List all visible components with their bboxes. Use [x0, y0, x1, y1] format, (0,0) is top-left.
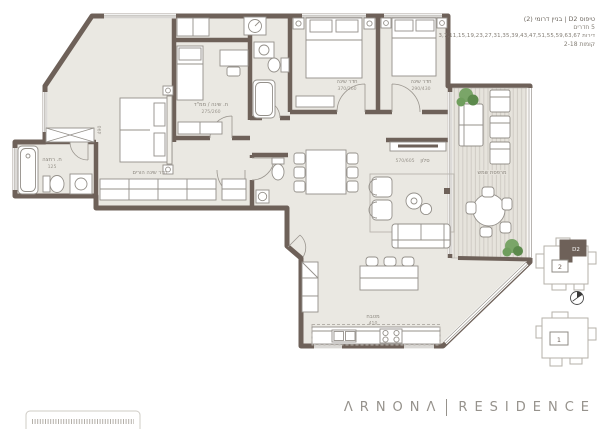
- label-balcony: מרפסת שמש: [478, 170, 507, 176]
- dining-table: [306, 150, 346, 194]
- dim-bedroom-study: 275/260: [201, 109, 220, 115]
- study-dresser: [178, 122, 222, 134]
- master-bed: [120, 96, 172, 164]
- master-sink: [70, 174, 92, 194]
- bathtub: [253, 80, 275, 118]
- bedroom-a-bed: [306, 18, 362, 78]
- logo-brand: ΛRNONΛ: [344, 400, 443, 415]
- window-bath-left: [13, 148, 18, 190]
- logo-divider: [446, 399, 447, 416]
- keyplan-building-1-label: 1: [557, 336, 561, 344]
- keyplan-unit-tag: D2: [572, 247, 580, 253]
- unit-type-line: טיפוס D2 | בניין דרומי (2): [355, 15, 595, 24]
- dim-bedroom-b: 290/430: [411, 86, 430, 92]
- master-nightstand-top: [163, 86, 173, 95]
- unit-numbers-line: דירות 3,7,11,15,19,23,27,31,35,39,43,47,…: [355, 33, 595, 41]
- lounger-1: [490, 90, 510, 112]
- key-plan: D2 2 1: [536, 238, 596, 366]
- sofa: [392, 224, 450, 248]
- armchair-2: [369, 200, 392, 220]
- keyplan-building-2-label: 2: [558, 263, 562, 271]
- scale-bar: [26, 411, 140, 429]
- label-kitchen: מטבח: [366, 314, 380, 320]
- dim-master-bedroom: 490: [97, 126, 103, 135]
- window-kitchen-2: [404, 344, 434, 349]
- lounger-2: [490, 116, 510, 138]
- dim-bedroom-a: 370/260: [337, 86, 356, 92]
- outdoor-table: [473, 194, 505, 226]
- balcony-bottom-wall: [458, 258, 531, 260]
- bath-toilet: [268, 58, 289, 72]
- stove: [380, 329, 402, 343]
- kitchen-counter: [312, 327, 440, 344]
- bedroom-a-nightstand-l: [293, 18, 304, 29]
- armchair-1: [369, 177, 392, 197]
- unit-floors-line: קומות 2-18: [355, 41, 595, 50]
- keyplan-building-2: D2 2: [536, 238, 596, 290]
- dim-kitchen: 410: [369, 321, 378, 327]
- washing-machine: [244, 17, 266, 35]
- coffee-table-2: [420, 203, 431, 214]
- bath-sink: [254, 42, 274, 58]
- tv-console: [390, 142, 446, 151]
- master-wardrobe: [100, 179, 216, 200]
- project-logo: ΛRNONΛ RESIDENCE: [344, 399, 596, 416]
- window-master-left: [43, 92, 48, 132]
- kitchen-sink: [332, 330, 356, 342]
- logo-name: RESIDENCE: [458, 400, 596, 415]
- bedroom-a-dresser: [296, 96, 334, 107]
- compass: [571, 292, 584, 305]
- floor-plan-page: חדר שינה הורים 490 ח. רחצה 125 ח. שינה /…: [0, 0, 600, 429]
- unit-rooms-line: 5 חדרים: [355, 24, 595, 33]
- master-toilet: [43, 176, 64, 193]
- dim-living: 570/605: [395, 158, 414, 164]
- label-living: סלון: [420, 158, 430, 164]
- wc-sink: [256, 190, 269, 203]
- wardrobe-2: [222, 179, 246, 200]
- label-bedroom-b: חדר שינה: [410, 79, 431, 85]
- kitchen-island: [360, 266, 418, 290]
- kitchen-tall-units: [302, 262, 318, 312]
- label-bedroom-a: חדר שינה: [336, 79, 357, 85]
- master-bathtub: [18, 146, 38, 194]
- floor-lamp: [444, 188, 450, 194]
- bar-stools: [366, 257, 414, 266]
- floorplan-canvas: חדר שינה הורים 490 ח. רחצה 125 ח. שינה /…: [0, 0, 600, 429]
- label-master-bedroom: חדר שינה הורים: [132, 170, 167, 176]
- window-master-top: [104, 14, 176, 19]
- outdoor-sofa: [459, 104, 483, 146]
- shaft: [46, 128, 94, 142]
- study-closet: [177, 18, 209, 36]
- lounger-3: [490, 142, 510, 164]
- window-kitchen-1: [314, 344, 342, 349]
- label-bedroom-study: ח. שינה / ממ"ד: [194, 102, 228, 108]
- coffee-table-1: [406, 193, 422, 209]
- wc-toilet: [272, 158, 284, 180]
- keyplan-building-1: 1: [536, 312, 596, 366]
- unit-info-block: טיפוס D2 | בניין דרומי (2) 5 חדרים דירות…: [355, 15, 595, 49]
- study-bed: [177, 46, 203, 100]
- dim-master-bath: 125: [48, 164, 57, 170]
- label-master-bath: ח. רחצה: [42, 157, 61, 163]
